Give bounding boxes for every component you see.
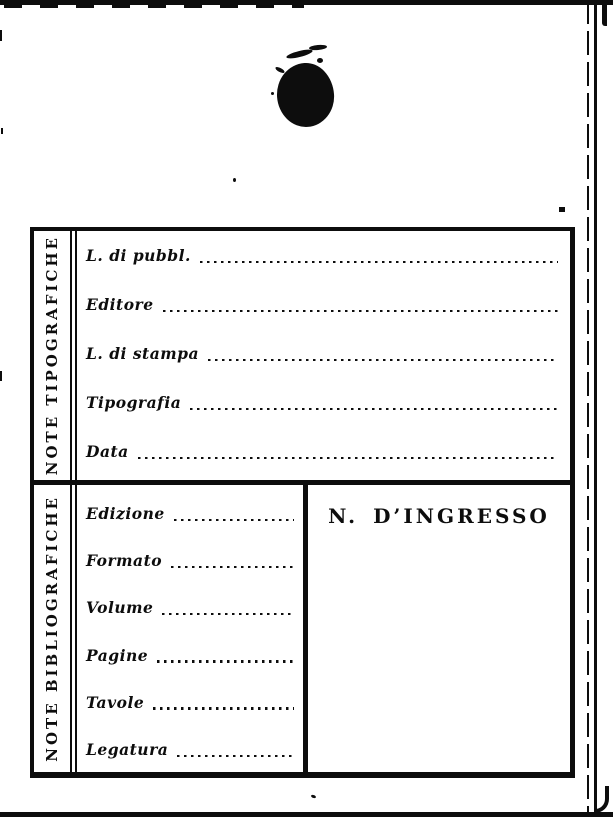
bibliographic-fields-area: Edizione Formato Volume Pagine Tavole xyxy=(77,485,303,772)
scan-corner-bottom-right-mark xyxy=(595,786,609,813)
field-label: Pagine xyxy=(86,646,148,665)
scan-speck-mark xyxy=(559,207,565,212)
field-label: Tipografia xyxy=(86,393,181,412)
entry-dotted-line xyxy=(157,651,294,665)
field-row-l-di-stampa: L. di stampa xyxy=(86,344,558,363)
entry-dotted-line xyxy=(174,509,294,523)
field-label: L. di pubbl. xyxy=(86,246,191,265)
scan-speck-mark xyxy=(0,30,2,41)
field-row-formato: Formato xyxy=(86,551,294,570)
note-tipografiche-header-column: NOTE TIPOGRAFICHE xyxy=(34,231,77,480)
entry-dotted-line xyxy=(208,349,558,363)
scan-corner-top-right-mark xyxy=(598,0,611,4)
ingresso-value xyxy=(308,536,570,716)
entry-dotted-line xyxy=(200,251,558,265)
note-bibliografiche-section: NOTE BIBLIOGRAFICHE Edizione Formato Vol… xyxy=(34,485,570,772)
ink-smudge-mark xyxy=(286,48,314,60)
scan-edge-bottom-mark xyxy=(0,812,613,817)
entry-dotted-line xyxy=(153,698,294,712)
entry-dotted-line xyxy=(171,556,294,570)
entry-dotted-line xyxy=(138,447,558,461)
entry-dotted-line xyxy=(163,300,558,314)
ink-smudge-mark xyxy=(317,58,323,63)
entry-dotted-line xyxy=(162,603,294,617)
field-row-tipografia: Tipografia xyxy=(86,393,558,412)
field-label: Edizione xyxy=(86,504,165,523)
catalog-card-table: NOTE TIPOGRAFICHE L. di pubbl. Editore L… xyxy=(30,227,575,778)
scanned-catalog-card-page: NOTE TIPOGRAFICHE L. di pubbl. Editore L… xyxy=(0,0,613,817)
note-tipografiche-section: NOTE TIPOGRAFICHE L. di pubbl. Editore L… xyxy=(34,231,570,485)
ingresso-box: N. D’INGRESSO xyxy=(308,485,570,772)
note-bibliografiche-header: NOTE BIBLIOGRAFICHE xyxy=(43,495,61,762)
field-label: Data xyxy=(86,442,129,461)
field-label: Tavole xyxy=(86,693,144,712)
field-row-editore: Editore xyxy=(86,295,558,314)
field-label: Editore xyxy=(86,295,154,314)
typographic-fields-area: L. di pubbl. Editore L. di stampa Tipogr… xyxy=(77,231,570,480)
note-tipografiche-header: NOTE TIPOGRAFICHE xyxy=(43,235,61,475)
field-row-l-di-pubbl: L. di pubbl. xyxy=(86,246,558,265)
ink-smudge-mark xyxy=(309,44,327,51)
scan-speck-mark xyxy=(1,128,3,134)
field-row-legatura: Legatura xyxy=(86,740,294,759)
field-row-edizione: Edizione xyxy=(86,504,294,523)
ink-smudge-mark xyxy=(271,92,274,95)
scan-edge-top-frays-mark xyxy=(4,5,304,8)
field-row-data: Data xyxy=(86,442,558,461)
ingresso-label: N. D’INGRESSO xyxy=(328,504,550,528)
field-row-volume: Volume xyxy=(86,598,294,617)
field-row-tavole: Tavole xyxy=(86,693,294,712)
scan-speck-mark xyxy=(311,794,317,799)
field-row-pagine: Pagine xyxy=(86,646,294,665)
page-edge-line-broken-mark xyxy=(587,0,589,817)
note-bibliografiche-header-column: NOTE BIBLIOGRAFICHE xyxy=(34,485,77,772)
entry-dotted-line xyxy=(190,398,558,412)
field-label: Legatura xyxy=(86,740,168,759)
entry-dotted-line xyxy=(177,745,294,759)
page-edge-line-solid-mark xyxy=(594,0,597,817)
scan-speck-mark xyxy=(233,178,236,182)
field-label: L. di stampa xyxy=(86,344,199,363)
scan-speck-mark xyxy=(0,371,2,381)
field-label: Volume xyxy=(86,598,153,617)
ink-smudge-mark xyxy=(275,66,286,74)
field-label: Formato xyxy=(86,551,162,570)
